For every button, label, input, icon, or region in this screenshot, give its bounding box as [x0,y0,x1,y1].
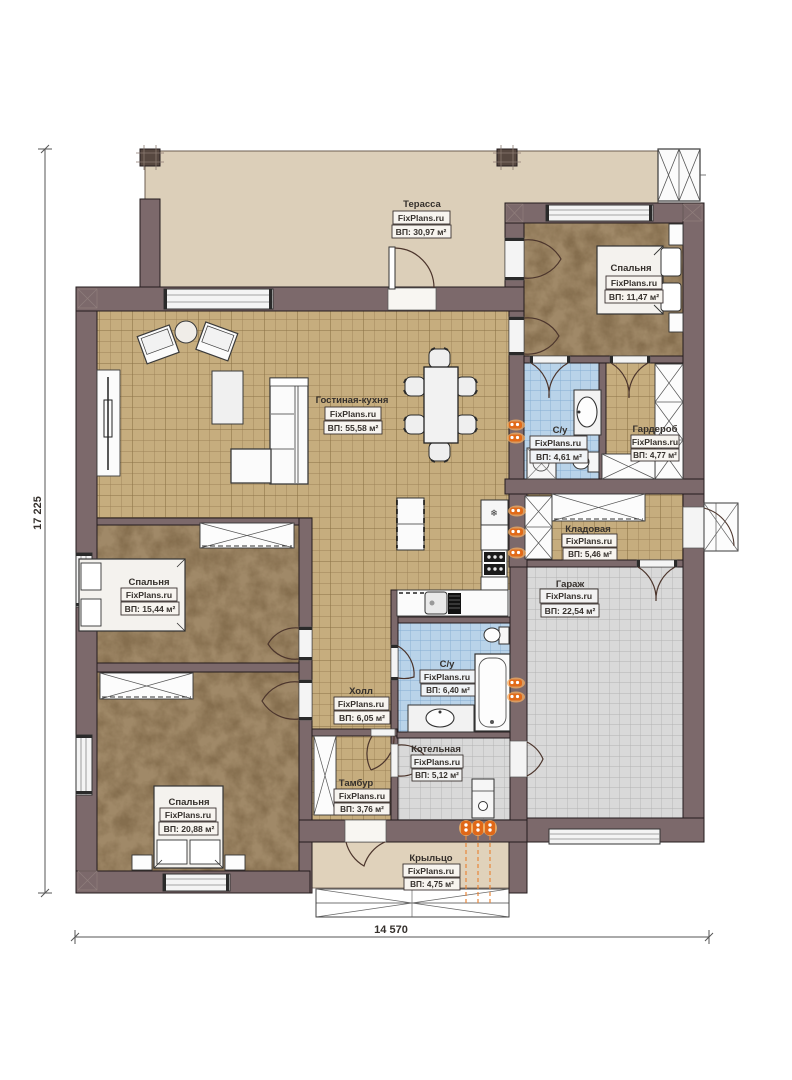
svg-text:Тамбур: Тамбур [339,778,374,789]
svg-text:ВП: 6,40 м²: ВП: 6,40 м² [426,686,470,695]
svg-text:Холл: Холл [349,686,373,697]
svg-text:Спальня: Спальня [168,797,209,808]
svg-text:ВП: 5,12 м²: ВП: 5,12 м² [415,771,459,780]
svg-text:ВП: 4,75 м²: ВП: 4,75 м² [410,880,454,889]
svg-text:FixPlans.ru: FixPlans.ru [126,590,172,600]
svg-text:ВП: 11,47 м²: ВП: 11,47 м² [609,292,659,302]
svg-text:Гараж: Гараж [556,579,585,590]
svg-text:FixPlans.ru: FixPlans.ru [408,866,454,876]
svg-text:FixPlans.ru: FixPlans.ru [632,437,678,447]
svg-text:FixPlans.ru: FixPlans.ru [546,591,592,601]
svg-text:FixPlans.ru: FixPlans.ru [330,409,376,419]
svg-text:FixPlans.ru: FixPlans.ru [414,757,460,767]
svg-text:Терасса: Терасса [403,199,441,210]
svg-text:С/у: С/у [553,425,569,436]
svg-text:FixPlans.ru: FixPlans.ru [424,672,470,682]
svg-text:Спальня: Спальня [128,577,169,588]
svg-text:Гостиная-кухня: Гостиная-кухня [316,395,389,406]
svg-text:Котельная: Котельная [411,744,461,755]
svg-text:FixPlans.ru: FixPlans.ru [566,536,612,546]
svg-text:Кладовая: Кладовая [565,524,611,535]
svg-text:17 225: 17 225 [32,496,44,530]
svg-text:ВП: 5,46 м²: ВП: 5,46 м² [568,550,612,559]
svg-text:FixPlans.ru: FixPlans.ru [339,791,385,801]
svg-text:С/у: С/у [440,659,456,670]
svg-text:ВП: 6,05 м²: ВП: 6,05 м² [339,713,385,723]
svg-text:14 570: 14 570 [374,924,408,936]
svg-text:Гардероб: Гардероб [633,424,678,435]
svg-text:ВП: 20,88 м²: ВП: 20,88 м² [164,824,215,834]
svg-text:ВП: 30,97 м²: ВП: 30,97 м² [396,227,447,237]
svg-text:ВП: 4,77 м²: ВП: 4,77 м² [633,451,677,460]
svg-text:Крыльцо: Крыльцо [409,853,452,864]
svg-text:ВП: 55,58 м²: ВП: 55,58 м² [328,423,379,433]
svg-text:FixPlans.ru: FixPlans.ru [611,278,657,288]
svg-text:ВП: 15,44 м²: ВП: 15,44 м² [125,604,176,614]
svg-text:FixPlans.ru: FixPlans.ru [165,810,211,820]
svg-text:FixPlans.ru: FixPlans.ru [338,699,384,709]
svg-text:FixPlans.ru: FixPlans.ru [398,213,444,223]
svg-text:Спальня: Спальня [610,263,651,274]
svg-text:FixPlans.ru: FixPlans.ru [535,438,581,448]
svg-text:ВП: 4,61 м²: ВП: 4,61 м² [536,452,582,462]
svg-text:❄︎: ❄︎ [490,508,498,518]
svg-text:ВП: 22,54 м²: ВП: 22,54 м² [545,606,596,616]
svg-text:ВП: 3,76 м²: ВП: 3,76 м² [340,805,384,814]
